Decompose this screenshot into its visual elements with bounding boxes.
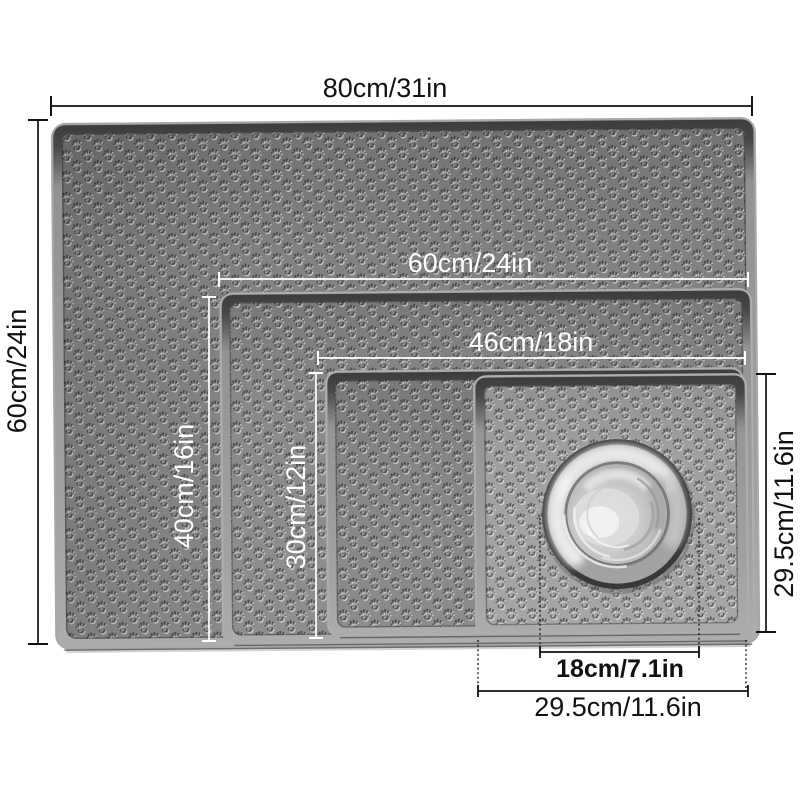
svg-text:29.5cm/11.6in: 29.5cm/11.6in — [534, 692, 702, 722]
svg-text:60cm/24in: 60cm/24in — [2, 309, 32, 434]
svg-text:18cm/7.1in: 18cm/7.1in — [556, 655, 684, 683]
svg-text:46cm/18in: 46cm/18in — [469, 327, 594, 357]
svg-text:30cm/12in: 30cm/12in — [281, 445, 311, 570]
svg-text:80cm/31in: 80cm/31in — [323, 73, 448, 103]
svg-text:60cm/24in: 60cm/24in — [408, 248, 533, 278]
svg-text:29.5cm/11.6in: 29.5cm/11.6in — [769, 430, 799, 598]
svg-text:40cm/16in: 40cm/16in — [169, 424, 199, 549]
